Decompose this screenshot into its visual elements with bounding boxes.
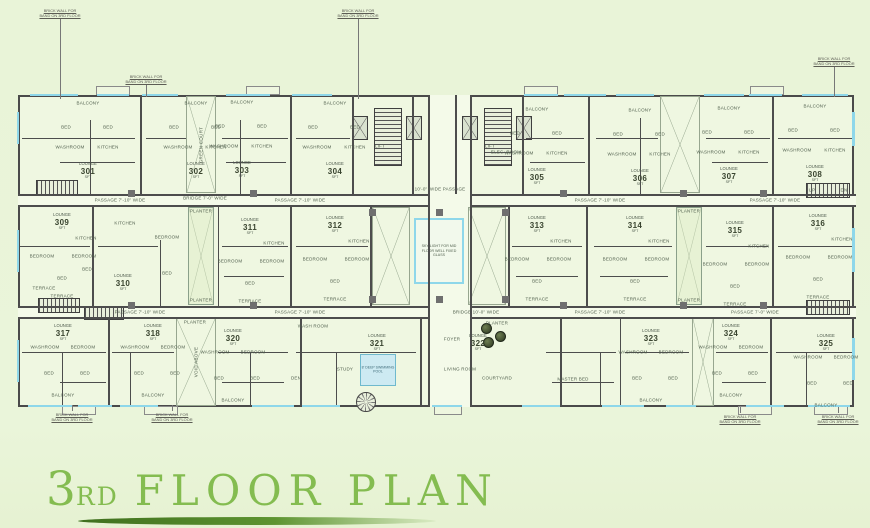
- window-glazing: [524, 94, 558, 97]
- plan-label: PASSAGE 7'-0" WIDE: [731, 309, 779, 314]
- room-label: KITCHEN: [738, 149, 759, 154]
- unit-area-unit: SFT: [91, 288, 155, 292]
- window-glazing: [292, 94, 332, 97]
- room-label: BED: [702, 129, 712, 134]
- balcony-bump: [434, 406, 462, 415]
- wall: [770, 318, 772, 406]
- room-label: BED: [532, 278, 542, 283]
- room-label: BED: [668, 375, 678, 380]
- plan-label: PASSAGE 7'-10" WIDE: [95, 197, 146, 202]
- room-label: BALCONY: [142, 392, 165, 397]
- window-glazing: [749, 94, 782, 97]
- room-label: BED: [250, 375, 260, 380]
- plan-label: PLANTER: [190, 297, 212, 302]
- plan-label: ELEC. ROOM: [491, 149, 521, 154]
- room-label: BED: [613, 131, 623, 136]
- skylight: SKY LIGHT FOR MID FLOOR WELL FIXED GLASS: [414, 218, 464, 284]
- title-main: FLOOR PLAN: [135, 470, 499, 512]
- unit-label-325: LOUNGE325SFT: [794, 334, 858, 352]
- window-glazing: [120, 405, 158, 408]
- room-label: WASHROOM: [56, 144, 85, 149]
- plan-label: COURTYARD: [482, 375, 512, 380]
- spiral-stair: [356, 392, 376, 412]
- unit-label-308: LOUNGE308SFT: [783, 165, 847, 183]
- window-glazing: [17, 230, 20, 272]
- room-label: WASHROOM: [31, 344, 60, 349]
- room-label: WASHROOM: [201, 349, 230, 354]
- wall: [420, 318, 422, 406]
- room-label: TERRACE: [724, 301, 747, 306]
- wall: [600, 352, 601, 406]
- brick-wall-annotation: BRICK WALL FORBAND ON 3RD FLOOR: [151, 412, 192, 423]
- window-glazing: [17, 112, 20, 144]
- void-label: VOID ABOVE: [194, 347, 199, 378]
- unit-area-unit: SFT: [210, 175, 274, 179]
- unit-label-301: LOUNGE301SFT: [56, 162, 120, 180]
- plan-label: PASSAGE 7'-10" WIDE: [575, 309, 626, 314]
- room-label: BEDROOM: [30, 253, 55, 258]
- column: [680, 302, 687, 309]
- annotation-leader: [172, 405, 173, 411]
- staircase: [806, 300, 850, 315]
- room-label: BALCONY: [804, 103, 827, 108]
- wall: [300, 318, 302, 406]
- window-glazing: [522, 405, 560, 408]
- room-label: BEDROOM: [739, 344, 764, 349]
- wall: [336, 352, 337, 406]
- room-label: BALCONY: [77, 100, 100, 105]
- wall: [588, 95, 590, 194]
- window-glazing: [746, 405, 784, 408]
- plan-label: MASTER BED: [557, 376, 588, 381]
- wall: [90, 120, 91, 194]
- annotation-line: BAND ON 3RD FLOOR: [151, 417, 192, 422]
- window-glazing: [616, 94, 654, 97]
- room-label: BED: [632, 375, 642, 380]
- annotation-line: BAND ON 3RD FLOOR: [813, 61, 854, 66]
- wall: [240, 120, 241, 194]
- room-label: TERRACE: [807, 294, 830, 299]
- window-glazing: [28, 405, 72, 408]
- plan-label: PASSAGE 7'-10" WIDE: [275, 309, 326, 314]
- room-label: BED: [630, 278, 640, 283]
- annotation-leader: [146, 85, 147, 97]
- lift-label: LIFT: [485, 143, 495, 148]
- unit-label-312: LOUNGE312SFT: [303, 216, 367, 234]
- unit-label-324: LOUNGE324SFT: [699, 324, 763, 342]
- unit-area-unit: SFT: [345, 348, 409, 352]
- plan-label: STUDY: [337, 366, 353, 371]
- annotation-line: BAND ON 3RD FLOOR: [39, 13, 80, 18]
- wall: [778, 246, 852, 247]
- unit-area-unit: SFT: [31, 338, 95, 342]
- plan-label: BRIDGE 7'-0" WIDE: [183, 195, 227, 200]
- brick-wall-annotation: BRICK WALL FORBAND ON 3RD FLOOR: [51, 412, 92, 423]
- room-label: BED: [257, 123, 267, 128]
- wall: [594, 246, 672, 247]
- wall: [428, 95, 430, 407]
- room-label: TERRACE: [239, 298, 262, 303]
- wall: [778, 138, 854, 139]
- wall: [716, 352, 768, 353]
- annotation-leader: [740, 407, 741, 413]
- void-label: GREEN COURT: [199, 126, 204, 162]
- wall: [224, 276, 284, 277]
- wall: [772, 206, 774, 306]
- room-label: BED: [712, 370, 722, 375]
- unit-label-316: LOUNGE316SFT: [786, 214, 850, 232]
- room-label: BEDROOM: [72, 253, 97, 258]
- annotation-line: BAND ON 3RD FLOOR: [817, 419, 858, 424]
- column: [436, 209, 443, 216]
- wall: [130, 352, 131, 406]
- floor-plan-title: 3RD FLOOR PLAN: [46, 466, 499, 513]
- room-label: KITCHEN: [344, 144, 365, 149]
- room-label: BED: [350, 124, 360, 129]
- room-label: BEDROOM: [645, 256, 670, 261]
- room-label: WASHROOM: [210, 143, 239, 148]
- room-label: KITCHEN: [348, 238, 369, 243]
- unit-label-310: LOUNGE310SFT: [91, 274, 155, 292]
- room-label: BALCONY: [718, 105, 741, 110]
- room-label: BED: [308, 124, 318, 129]
- wall: [470, 306, 856, 308]
- wall: [776, 352, 852, 353]
- annotation-leader: [834, 67, 835, 97]
- wall: [552, 382, 614, 383]
- unit-label-303: LOUNGE303SFT: [210, 161, 274, 179]
- wall: [222, 246, 288, 247]
- room-label: BALCONY: [720, 392, 743, 397]
- wall: [470, 95, 472, 407]
- room-label: KITCHEN: [546, 150, 567, 155]
- brick-wall-annotation: BRICK WALL FORBAND ON 3RD FLOOR: [125, 74, 166, 85]
- unit-label-304: LOUNGE304SFT: [303, 162, 367, 180]
- unit-area-unit: SFT: [603, 230, 667, 234]
- room-label: BED: [170, 370, 180, 375]
- room-label: BED: [843, 380, 853, 385]
- column: [560, 302, 567, 309]
- room-label: BEDROOM: [659, 349, 684, 354]
- room-label: BED: [744, 129, 754, 134]
- pool-label: 8' DEEP SWIMMING POOL: [361, 366, 395, 375]
- room-label: BED: [57, 275, 67, 280]
- annotation-line: BAND ON 3RD FLOOR: [719, 419, 760, 424]
- wall: [560, 318, 562, 406]
- wall: [412, 95, 414, 194]
- room-label: BED: [552, 130, 562, 135]
- unit-area-unit: SFT: [505, 182, 569, 186]
- room-label: WASHROOM: [164, 144, 193, 149]
- room-label: BED: [214, 375, 224, 380]
- room-label: WASHROOM: [794, 354, 823, 359]
- unit-area-unit: SFT: [56, 176, 120, 180]
- room-label: KITCHEN: [75, 235, 96, 240]
- skylight-label: SKY LIGHT FOR MID FLOOR WELL FIXED GLASS: [417, 244, 461, 258]
- wall: [706, 138, 770, 139]
- void-area: [372, 207, 410, 305]
- annotation-leader: [72, 405, 73, 411]
- column: [369, 209, 376, 216]
- room-label: KITCHEN: [748, 243, 769, 248]
- room-label: BEDROOM: [786, 254, 811, 259]
- plan-label: LIVING ROOM: [444, 366, 476, 371]
- window-glazing: [17, 340, 20, 382]
- wall: [290, 95, 292, 194]
- room-label: BED: [748, 370, 758, 375]
- staircase: [484, 108, 512, 166]
- column: [250, 190, 257, 197]
- room-label: BED: [80, 370, 90, 375]
- unit-label-311: LOUNGE311SFT: [218, 218, 282, 236]
- window-glazing: [852, 112, 855, 146]
- room-label: KITCHEN: [649, 151, 670, 156]
- unit-area-unit: SFT: [703, 235, 767, 239]
- wall: [290, 206, 292, 306]
- room-label: KITCHEN: [251, 143, 272, 148]
- wall: [22, 138, 135, 139]
- wall: [370, 206, 372, 306]
- column: [128, 190, 135, 197]
- wall: [18, 205, 428, 207]
- room-label: BALCONY: [222, 397, 245, 402]
- plan-label: PASSAGE 7'-10" WIDE: [275, 197, 326, 202]
- plan-label: PLANTER: [486, 320, 508, 325]
- room-label: BEDROOM: [218, 258, 243, 263]
- window-glazing: [432, 405, 462, 408]
- unit-area-unit: SFT: [30, 227, 94, 231]
- window-glazing: [252, 405, 294, 408]
- wall: [596, 138, 658, 139]
- plan-label: FOYER: [444, 336, 461, 341]
- window-glazing: [97, 94, 129, 97]
- room-label: BALCONY: [629, 107, 652, 112]
- window-glazing: [302, 405, 340, 408]
- annotation-line: BAND ON 3RD FLOOR: [51, 417, 92, 422]
- plan-label: 10'-0" WIDE PASSAGE: [415, 186, 466, 191]
- wall: [516, 276, 578, 277]
- wall: [512, 246, 582, 247]
- room-label: KITCHEN: [550, 238, 571, 243]
- wall: [112, 352, 174, 353]
- wall: [18, 317, 428, 319]
- title-ordinal: 3: [46, 466, 76, 513]
- wall: [722, 382, 766, 383]
- room-label: BEDROOM: [745, 261, 770, 266]
- room-label: BED: [61, 124, 71, 129]
- plan-label: UP: [809, 187, 816, 192]
- room-label: TERRACE: [526, 296, 549, 301]
- window-glazing: [226, 94, 270, 97]
- unit-label-317: LOUNGE317SFT: [31, 324, 95, 342]
- wall: [146, 138, 186, 139]
- unit-area-unit: SFT: [218, 232, 282, 236]
- unit-label-321: LOUNGE321SFT: [345, 334, 409, 352]
- wall: [470, 194, 856, 196]
- plan-label: PLANTER: [678, 208, 700, 213]
- unit-area-unit: SFT: [783, 179, 847, 183]
- wall: [222, 138, 288, 139]
- plan-label: DEN: [291, 375, 301, 380]
- room-label: BEDROOM: [505, 256, 530, 261]
- room-label: BALCONY: [52, 392, 75, 397]
- annotation-leader: [60, 19, 61, 99]
- room-label: WASHROOM: [699, 344, 728, 349]
- plan-canvas: GREEN COURTVOID ABOVESKY LIGHT FOR MID F…: [0, 0, 870, 528]
- annotation-leader: [358, 19, 359, 99]
- unit-label-314: LOUNGE314SFT: [603, 216, 667, 234]
- unit-area-unit: SFT: [786, 228, 850, 232]
- wall: [22, 352, 106, 353]
- annotation-line: BAND ON 3RD FLOOR: [337, 13, 378, 18]
- annotation-leader: [838, 407, 839, 413]
- room-label: BEDROOM: [303, 256, 328, 261]
- plan-label: WASH ROOM: [298, 323, 328, 328]
- room-label: BALCONY: [231, 99, 254, 104]
- room-label: TERRACE: [324, 296, 347, 301]
- unit-area-unit: SFT: [446, 348, 510, 352]
- room-label: WASHROOM: [697, 149, 726, 154]
- room-label: BEDROOM: [71, 344, 96, 349]
- wall: [806, 352, 807, 406]
- unit-area-unit: SFT: [303, 230, 367, 234]
- room-label: WASHROOM: [608, 151, 637, 156]
- room-label: BED: [103, 124, 113, 129]
- window-glazing: [704, 94, 744, 97]
- lift-shaft: [406, 116, 422, 140]
- plan-label: PASSAGE 7'-10" WIDE: [575, 197, 626, 202]
- wall: [140, 95, 142, 194]
- unit-label-323: LOUNGE323SFT: [619, 329, 683, 347]
- room-label: BED: [245, 280, 255, 285]
- column: [760, 302, 767, 309]
- column: [760, 190, 767, 197]
- unit-area-unit: SFT: [619, 343, 683, 347]
- column: [560, 190, 567, 197]
- staircase: [36, 180, 78, 195]
- window-glazing: [78, 405, 112, 408]
- wall: [18, 306, 428, 308]
- window-glazing: [30, 94, 78, 97]
- room-label: BED: [510, 130, 520, 135]
- void-area: [468, 207, 506, 305]
- wall: [108, 318, 110, 406]
- plan-label: TERRACE: [33, 285, 56, 290]
- wall: [712, 162, 768, 163]
- plan-label: PASSAGE 7'-10" WIDE: [750, 197, 801, 202]
- room-label: BED: [655, 131, 665, 136]
- wall: [20, 246, 90, 247]
- plan-label: BRIDGE 10'-0" WIDE: [453, 309, 500, 314]
- column: [502, 296, 509, 303]
- column: [502, 209, 509, 216]
- room-label: BEDROOM: [547, 256, 572, 261]
- room-label: BED: [813, 276, 823, 281]
- plan-label: PLANTER: [190, 208, 212, 213]
- unit-label-309: LOUNGE309SFT: [30, 213, 94, 231]
- lift-shaft: [516, 116, 532, 140]
- wall: [772, 95, 774, 194]
- brick-wall-annotation: BRICK WALL FORBAND ON 3RD FLOOR: [813, 56, 854, 67]
- planter-strip: [188, 207, 214, 305]
- plan-label: PLANTER: [678, 297, 700, 302]
- room-label: BALCONY: [640, 397, 663, 402]
- room-label: TERRACE: [51, 293, 74, 298]
- unit-area-unit: SFT: [794, 348, 858, 352]
- corridor: [470, 308, 856, 317]
- room-label: WASHROOM: [619, 349, 648, 354]
- room-label: KITCHEN: [263, 240, 284, 245]
- room-label: BALCONY: [526, 106, 549, 111]
- wall: [470, 205, 856, 207]
- wall: [470, 317, 856, 319]
- window-glazing: [564, 94, 606, 97]
- wall: [296, 138, 350, 139]
- room-label: BEDROOM: [161, 344, 186, 349]
- room-label: BALCONY: [815, 402, 838, 407]
- wall: [160, 240, 161, 306]
- unit-label-305: LOUNGE305SFT: [505, 168, 569, 186]
- room-label: BED: [788, 127, 798, 132]
- room-label: BED: [44, 370, 54, 375]
- plan-label: PLANTER: [184, 319, 206, 324]
- room-label: BALCONY: [185, 100, 208, 105]
- unit-label-315: LOUNGE315SFT: [703, 221, 767, 239]
- window-glazing: [802, 94, 848, 97]
- unit-label-307: LOUNGE307SFT: [697, 167, 761, 185]
- room-label: BEDROOM: [155, 234, 180, 239]
- wall: [455, 95, 457, 194]
- room-label: KITCHEN: [114, 220, 135, 225]
- room-label: KITCHEN: [831, 236, 852, 241]
- unit-label-320: LOUNGE320SFT: [201, 329, 265, 347]
- window-glazing: [666, 405, 696, 408]
- unit-area-unit: SFT: [303, 176, 367, 180]
- annotation-line: BAND ON 3RD FLOOR: [125, 79, 166, 84]
- unit-area-unit: SFT: [201, 343, 265, 347]
- room-label: WASHROOM: [783, 147, 812, 152]
- room-label: KITCHEN: [97, 144, 118, 149]
- unit-area-unit: SFT: [608, 183, 672, 187]
- unit-area-unit: SFT: [697, 181, 761, 185]
- lift-label: LIFT: [375, 143, 385, 148]
- unit-area-unit: SFT: [121, 338, 185, 342]
- plan-label: DN: [841, 187, 848, 192]
- room-label: KITCHEN: [648, 238, 669, 243]
- unit-area-unit: SFT: [699, 338, 763, 342]
- room-label: BED: [215, 123, 225, 128]
- unit-label-313: LOUNGE313SFT: [505, 216, 569, 234]
- plan-label: PASSAGE 7'-10" WIDE: [115, 309, 166, 314]
- brick-wall-annotation: BRICK WALL FORBAND ON 3RD FLOOR: [337, 8, 378, 19]
- room-label: BEDROOM: [828, 254, 853, 259]
- column: [680, 190, 687, 197]
- room-label: WASHROOM: [121, 344, 150, 349]
- swimming-pool: 8' DEEP SWIMMING POOL: [360, 354, 396, 386]
- room-label: BED: [82, 266, 92, 271]
- wall: [60, 382, 106, 383]
- window-glazing: [602, 405, 644, 408]
- column: [436, 296, 443, 303]
- wall: [62, 352, 63, 406]
- unit-area-unit: SFT: [505, 230, 569, 234]
- wall: [526, 138, 584, 139]
- room-label: WASHROOM: [303, 144, 332, 149]
- room-label: BED: [730, 283, 740, 288]
- room-label: BED: [169, 124, 179, 129]
- brick-wall-annotation: BRICK WALL FORBAND ON 3RD FLOOR: [39, 8, 80, 19]
- planter-strip: [676, 207, 702, 305]
